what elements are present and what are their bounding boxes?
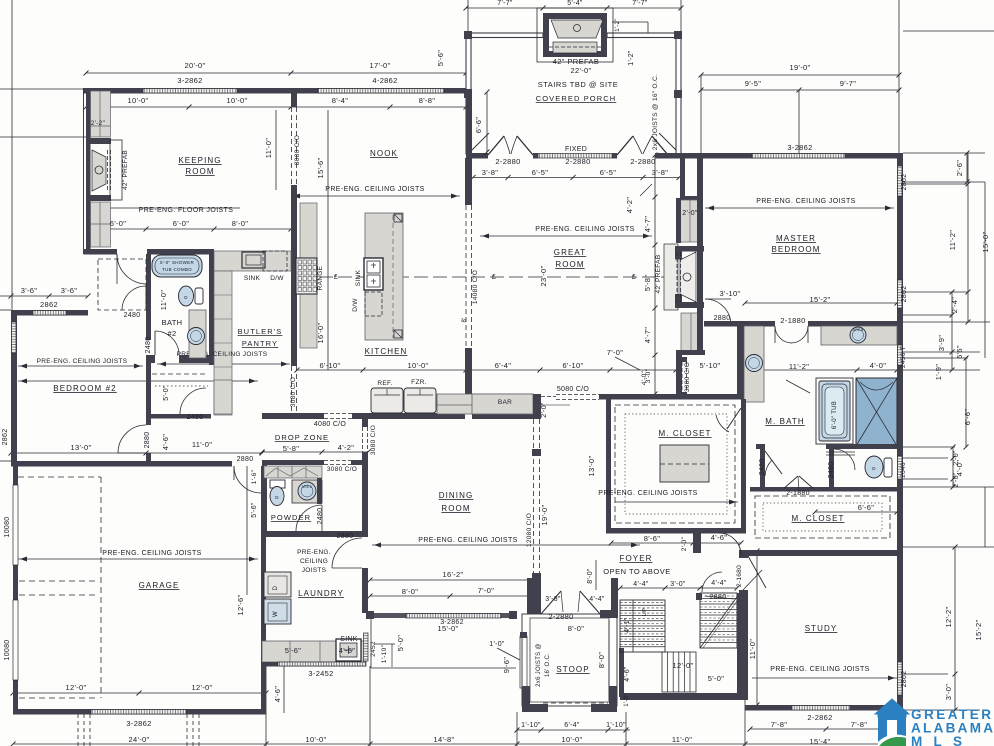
svg-text:2480: 2480 bbox=[317, 508, 324, 525]
svg-text:12'-0": 12'-0" bbox=[66, 683, 87, 692]
svg-text:PRE-ENG. CEILING JOISTS: PRE-ENG. CEILING JOISTS bbox=[325, 186, 424, 193]
svg-text:JOISTS: JOISTS bbox=[302, 567, 327, 574]
svg-text:D: D bbox=[273, 585, 279, 590]
svg-text:₤: ₤ bbox=[492, 274, 496, 281]
svg-text:OPEN TO ABOVE: OPEN TO ABOVE bbox=[603, 567, 671, 576]
svg-text:5'-10": 5'-10" bbox=[700, 361, 721, 370]
svg-text:2452: 2452 bbox=[370, 641, 377, 657]
svg-text:2'-0": 2'-0" bbox=[681, 536, 688, 551]
svg-text:PRE-ENG. CEILING JOISTS: PRE-ENG. CEILING JOISTS bbox=[756, 198, 855, 205]
svg-text:4'-7": 4'-7" bbox=[643, 327, 652, 343]
svg-text:2862: 2862 bbox=[40, 300, 58, 309]
svg-text:3-2862: 3-2862 bbox=[126, 719, 151, 728]
svg-text:NOOK: NOOK bbox=[370, 149, 398, 158]
svg-text:3080 C/O: 3080 C/O bbox=[327, 466, 357, 473]
svg-text:16' O.C.: 16' O.C. bbox=[545, 653, 551, 677]
svg-text:FOYER: FOYER bbox=[619, 554, 652, 563]
svg-text:5'-6": 5'-6" bbox=[285, 646, 301, 655]
svg-text:24'-0": 24'-0" bbox=[129, 735, 150, 744]
svg-text:PRE-ENG. CEILING JOISTS: PRE-ENG. CEILING JOISTS bbox=[770, 666, 869, 673]
svg-text:4-2862: 4-2862 bbox=[372, 76, 397, 85]
svg-text:2480: 2480 bbox=[759, 459, 766, 476]
svg-text:BEDROOM #2: BEDROOM #2 bbox=[53, 384, 116, 393]
svg-text:4080 C/O: 4080 C/O bbox=[314, 421, 347, 428]
svg-text:8'-6": 8'-6" bbox=[644, 534, 660, 543]
svg-text:1'-2": 1'-2" bbox=[628, 50, 635, 66]
svg-text:7'-0": 7'-0" bbox=[478, 586, 494, 595]
svg-text:D: D bbox=[184, 295, 188, 300]
svg-text:13'-0": 13'-0" bbox=[587, 456, 596, 477]
svg-text:2880: 2880 bbox=[237, 456, 254, 463]
svg-text:1'-10": 1'-10" bbox=[381, 644, 388, 663]
svg-text:PRE-ENG. CEILING JOISTS: PRE-ENG. CEILING JOISTS bbox=[535, 226, 634, 233]
svg-text:4'-4": 4'-4" bbox=[633, 581, 649, 588]
svg-text:AREA: AREA bbox=[302, 485, 313, 489]
svg-text:KEEPING: KEEPING bbox=[178, 156, 221, 165]
svg-text:5'6": 5'6" bbox=[955, 345, 964, 359]
svg-text:9'-5": 9'-5" bbox=[745, 79, 761, 88]
svg-text:3'-0": 3'-0" bbox=[944, 684, 953, 700]
svg-text:14'-8": 14'-8" bbox=[434, 735, 455, 744]
svg-text:8'-0": 8'-0" bbox=[597, 652, 606, 668]
svg-text:STUDY: STUDY bbox=[805, 624, 838, 633]
svg-text:2862: 2862 bbox=[901, 174, 908, 191]
svg-text:2'-0": 2'-0" bbox=[541, 402, 548, 418]
svg-text:BATH: BATH bbox=[162, 318, 183, 327]
svg-text:6'-4": 6'-4" bbox=[564, 722, 580, 729]
svg-text:5'-8": 5'-8" bbox=[643, 275, 652, 291]
svg-text:6'-0" TUB: 6'-0" TUB bbox=[832, 401, 838, 429]
svg-text:12'-2": 12'-2" bbox=[944, 607, 953, 628]
svg-text:PRE-ENG. CEILING JOISTS: PRE-ENG. CEILING JOISTS bbox=[102, 550, 201, 557]
svg-text:UP: UP bbox=[642, 608, 648, 616]
svg-text:2-1880: 2-1880 bbox=[780, 316, 805, 325]
svg-text:6'-6": 6'-6" bbox=[474, 117, 483, 133]
svg-text:4'-7": 4'-7" bbox=[643, 216, 652, 232]
svg-text:19'-0": 19'-0" bbox=[540, 505, 549, 526]
svg-text:11'-0": 11'-0" bbox=[192, 440, 212, 449]
svg-text:6'-10": 6'-10" bbox=[563, 361, 584, 370]
svg-text:DROP ZONE: DROP ZONE bbox=[275, 433, 329, 442]
svg-text:7'-0": 7'-0" bbox=[607, 348, 623, 357]
svg-text:8'-0": 8'-0" bbox=[587, 568, 594, 584]
svg-text:2480: 2480 bbox=[187, 414, 204, 421]
svg-text:10'-0": 10'-0" bbox=[306, 735, 327, 744]
svg-text:SINK: SINK bbox=[355, 269, 362, 286]
svg-text:6'-4": 6'-4" bbox=[495, 361, 511, 370]
svg-text:PRE-ENG. CEILING JOISTS: PRE-ENG. CEILING JOISTS bbox=[598, 490, 697, 497]
svg-text:5'-0" SHOWER: 5'-0" SHOWER bbox=[160, 260, 195, 265]
svg-text:8': 8' bbox=[462, 317, 468, 322]
svg-text:2862: 2862 bbox=[901, 671, 908, 688]
svg-text:1'-2": 1'-2" bbox=[615, 18, 621, 31]
svg-text:13'-0": 13'-0" bbox=[71, 443, 92, 452]
svg-text:12'-6": 12'-6" bbox=[236, 595, 245, 616]
svg-text:₤: ₤ bbox=[334, 274, 338, 281]
svg-text:3'-0": 3'-0" bbox=[670, 581, 686, 588]
svg-text:23'-0": 23'-0" bbox=[539, 266, 548, 287]
svg-text:10'-0": 10'-0" bbox=[227, 96, 248, 105]
svg-text:W: W bbox=[273, 611, 279, 617]
svg-text:11'-0": 11'-0" bbox=[672, 735, 692, 744]
svg-text:12'-0": 12'-0" bbox=[192, 683, 213, 692]
svg-text:5'-0": 5'-0" bbox=[708, 674, 724, 683]
svg-text:3'-8": 3'-8" bbox=[652, 168, 668, 177]
svg-text:6'-6": 6'-6" bbox=[858, 503, 874, 512]
svg-text:ROOM: ROOM bbox=[555, 260, 584, 269]
svg-text:4'-0": 4'-0" bbox=[641, 370, 648, 385]
svg-text:4'-6": 4'-6" bbox=[711, 533, 727, 542]
svg-text:3080 C/O: 3080 C/O bbox=[290, 377, 297, 407]
svg-text:STOOP: STOOP bbox=[556, 665, 589, 674]
svg-text:DINING: DINING bbox=[439, 491, 474, 500]
svg-text:5'-4": 5'-4" bbox=[567, 0, 583, 7]
svg-text:42" PREFAB: 42" PREFAB bbox=[122, 150, 129, 190]
svg-text:BAR: BAR bbox=[498, 399, 512, 406]
svg-text:4'-2": 4'-2" bbox=[338, 443, 354, 452]
svg-text:8'-8": 8'-8" bbox=[419, 96, 435, 105]
svg-text:1'-6": 1'-6" bbox=[251, 469, 258, 484]
svg-text:12'-0": 12'-0" bbox=[673, 661, 694, 670]
svg-text:#2: #2 bbox=[168, 329, 177, 338]
svg-text:2480: 2480 bbox=[828, 462, 835, 479]
svg-text:1'-10": 1'-10" bbox=[606, 722, 626, 729]
svg-text:4'-6": 4'-6" bbox=[161, 434, 170, 450]
svg-text:ROOM: ROOM bbox=[185, 167, 214, 176]
svg-text:SINK: SINK bbox=[244, 275, 261, 282]
svg-text:16'-0": 16'-0" bbox=[316, 323, 325, 344]
svg-text:15'-2": 15'-2" bbox=[974, 620, 983, 641]
svg-text:2880: 2880 bbox=[710, 594, 727, 601]
svg-text:14080 C/O: 14080 C/O bbox=[472, 270, 479, 304]
svg-text:15'-6": 15'-6" bbox=[316, 158, 325, 179]
svg-text:KITCHEN: KITCHEN bbox=[365, 347, 408, 356]
svg-text:ROOM: ROOM bbox=[441, 504, 470, 513]
svg-text:8'-0": 8'-0" bbox=[568, 624, 584, 633]
svg-text:1'-9": 1'-9" bbox=[934, 364, 943, 380]
svg-text:2x6 JOISTS @: 2x6 JOISTS @ bbox=[536, 643, 542, 687]
svg-text:17'-0": 17'-0" bbox=[370, 61, 391, 70]
svg-text:8'-0": 8'-0" bbox=[232, 219, 248, 228]
svg-text:TUB COMBO: TUB COMBO bbox=[162, 267, 192, 272]
svg-text:BUTLER'S: BUTLER'S bbox=[238, 327, 283, 336]
svg-text:3'-6": 3'-6" bbox=[61, 286, 77, 295]
svg-text:LAUNDRY: LAUNDRY bbox=[298, 589, 344, 598]
svg-text:3-2452: 3-2452 bbox=[308, 669, 333, 678]
svg-text:2862: 2862 bbox=[901, 286, 908, 303]
svg-text:3-2862: 3-2862 bbox=[177, 76, 202, 85]
svg-text:1'-2": 1'-2" bbox=[624, 693, 630, 706]
svg-text:12080 C/O: 12080 C/O bbox=[526, 513, 533, 547]
svg-text:STAIRS TBD @ SITE: STAIRS TBD @ SITE bbox=[538, 80, 618, 89]
svg-text:6'-0": 6'-0" bbox=[110, 219, 126, 228]
svg-text:5'-8": 5'-8" bbox=[283, 444, 299, 453]
svg-text:2046: 2046 bbox=[900, 462, 907, 478]
svg-text:5'-6": 5'-6" bbox=[436, 50, 445, 66]
svg-text:11'-0": 11'-0" bbox=[748, 639, 757, 659]
svg-text:11'-0": 11'-0" bbox=[264, 138, 273, 158]
svg-text:3080 C/O: 3080 C/O bbox=[684, 362, 691, 392]
svg-text:3'-10": 3'-10" bbox=[720, 289, 741, 298]
svg-text:2'-4": 2'-4" bbox=[950, 297, 959, 313]
svg-text:2x6 JOISTS @ 16" O.C.: 2x6 JOISTS @ 16" O.C. bbox=[652, 74, 659, 150]
svg-text:8080 C/O: 8080 C/O bbox=[294, 135, 301, 165]
svg-text:COVERED PORCH: COVERED PORCH bbox=[536, 94, 617, 103]
svg-text:5'-0": 5'-0" bbox=[163, 385, 170, 401]
svg-text:4'-6": 4'-6" bbox=[624, 666, 631, 682]
svg-text:2-2880: 2-2880 bbox=[548, 612, 573, 621]
svg-text:5080 C/O: 5080 C/O bbox=[557, 386, 590, 393]
svg-text:MASTER: MASTER bbox=[776, 234, 816, 243]
svg-text:6'-0": 6'-0" bbox=[173, 219, 189, 228]
svg-text:2-2862: 2-2862 bbox=[807, 713, 832, 722]
svg-text:2-2880: 2-2880 bbox=[565, 157, 590, 166]
svg-text:GARAGE: GARAGE bbox=[139, 581, 180, 590]
svg-text:2456 T: 2456 T bbox=[900, 346, 907, 368]
svg-text:RANGE: RANGE bbox=[317, 265, 324, 290]
svg-text:GREAT: GREAT bbox=[554, 248, 586, 257]
svg-text:22'-0": 22'-0" bbox=[571, 66, 592, 75]
svg-text:4'-2": 4'-2" bbox=[625, 197, 634, 213]
svg-text:D: D bbox=[872, 466, 876, 471]
svg-text:15'-0": 15'-0" bbox=[981, 232, 990, 253]
svg-text:5'-0": 5'-0" bbox=[396, 635, 405, 651]
svg-text:PRE-ENG. CEILING JOISTS: PRE-ENG. CEILING JOISTS bbox=[37, 358, 128, 365]
svg-text:2880: 2880 bbox=[337, 533, 354, 540]
svg-text:11'-2": 11'-2" bbox=[789, 362, 809, 371]
svg-text:MLS: MLS bbox=[911, 734, 963, 746]
svg-text:FIXED: FIXED bbox=[565, 146, 587, 153]
svg-text:FZR.: FZR. bbox=[411, 379, 427, 386]
svg-text:M. CLOSET: M. CLOSET bbox=[791, 514, 844, 523]
svg-text:4'-1": 4'-1" bbox=[624, 617, 631, 633]
svg-text:3080 C/O: 3080 C/O bbox=[370, 425, 377, 455]
svg-text:2-1680: 2-1680 bbox=[736, 565, 743, 587]
svg-text:4'-4": 4'-4" bbox=[711, 580, 727, 587]
svg-text:42" PREFAB: 42" PREFAB bbox=[553, 57, 600, 66]
svg-text:3'-6": 3'-6" bbox=[21, 286, 37, 295]
svg-text:PANTRY: PANTRY bbox=[242, 339, 278, 348]
svg-text:10080: 10080 bbox=[4, 640, 11, 661]
svg-text:2480: 2480 bbox=[145, 337, 152, 354]
svg-text:15'-2": 15'-2" bbox=[810, 295, 831, 304]
svg-text:3-2862: 3-2862 bbox=[787, 143, 812, 152]
svg-text:2880: 2880 bbox=[144, 432, 151, 449]
svg-text:6'-6": 6'-6" bbox=[963, 409, 972, 425]
svg-text:20'-0": 20'-0" bbox=[185, 61, 206, 70]
svg-text:16'-2": 16'-2" bbox=[443, 570, 464, 579]
svg-text:6'-5": 6'-5" bbox=[600, 168, 616, 177]
svg-text:9'-6": 9'-6" bbox=[502, 657, 511, 673]
svg-text:3'-8": 3'-8" bbox=[545, 596, 561, 603]
svg-text:7'-7": 7'-7" bbox=[632, 0, 648, 7]
svg-text:2880: 2880 bbox=[714, 315, 731, 322]
svg-text:1'-0": 1'-0" bbox=[489, 641, 505, 648]
svg-text:4'-4": 4'-4" bbox=[589, 596, 605, 603]
svg-text:M. CLOSET: M. CLOSET bbox=[658, 429, 711, 438]
svg-text:8'-4": 8'-4" bbox=[332, 96, 348, 105]
svg-text:9'-7": 9'-7" bbox=[840, 79, 856, 88]
svg-text:4'-6": 4'-6" bbox=[339, 646, 355, 655]
svg-text:10'-0": 10'-0" bbox=[408, 361, 429, 370]
svg-text:5'-6": 5'-6" bbox=[251, 502, 258, 518]
svg-text:POWDER: POWDER bbox=[271, 513, 311, 522]
svg-text:3'-8": 3'-8" bbox=[482, 168, 498, 177]
svg-text:6'-10": 6'-10" bbox=[320, 361, 341, 370]
svg-text:M. BATH: M. BATH bbox=[765, 417, 805, 426]
svg-text:6'-5": 6'-5" bbox=[532, 168, 548, 177]
svg-text:4'-6": 4'-6" bbox=[273, 686, 282, 702]
svg-text:2-2880: 2-2880 bbox=[495, 157, 520, 166]
svg-text:CEILING: CEILING bbox=[300, 558, 328, 565]
svg-text:2'-2": 2'-2" bbox=[91, 120, 106, 127]
svg-text:19'-0": 19'-0" bbox=[790, 63, 811, 72]
svg-text:2862: 2862 bbox=[2, 429, 9, 446]
svg-text:PRE-ENG.: PRE-ENG. bbox=[297, 549, 331, 556]
svg-text:15'-4": 15'-4" bbox=[810, 737, 831, 746]
svg-text:2480: 2480 bbox=[124, 312, 141, 319]
svg-text:₤: ₤ bbox=[632, 274, 636, 281]
svg-text:4'-0": 4'-0" bbox=[870, 361, 886, 370]
svg-text:2'-6": 2'-6" bbox=[955, 160, 964, 176]
svg-text:PRE-ENG. FLOOR JOISTS: PRE-ENG. FLOOR JOISTS bbox=[139, 207, 234, 214]
svg-text:PRE-ENG. CEILING JOISTS: PRE-ENG. CEILING JOISTS bbox=[418, 537, 517, 544]
svg-text:REF.: REF. bbox=[377, 380, 392, 387]
svg-text:7'-8": 7'-8" bbox=[851, 720, 867, 729]
svg-text:AREA: AREA bbox=[853, 328, 864, 332]
svg-text:2-1880: 2-1880 bbox=[786, 490, 810, 497]
svg-text:2'-0": 2'-0" bbox=[953, 472, 960, 488]
svg-text:10080: 10080 bbox=[4, 517, 11, 538]
svg-text:1'-10": 1'-10" bbox=[521, 722, 541, 729]
svg-text:3'-9": 3'-9" bbox=[937, 335, 946, 351]
svg-text:7'-8": 7'-8" bbox=[771, 720, 787, 729]
svg-text:2'-0": 2'-0" bbox=[682, 210, 698, 217]
svg-text:7'-7": 7'-7" bbox=[497, 0, 513, 7]
svg-text:11'-2": 11'-2" bbox=[948, 230, 957, 250]
svg-text:2-2880: 2-2880 bbox=[630, 157, 655, 166]
svg-text:8'-0": 8'-0" bbox=[402, 587, 418, 596]
svg-text:11'-0": 11'-0" bbox=[159, 290, 168, 310]
svg-text:15'-0": 15'-0" bbox=[438, 624, 459, 633]
svg-text:BEDROOM: BEDROOM bbox=[771, 245, 820, 254]
svg-text:42' PREFAB: 42' PREFAB bbox=[655, 255, 662, 294]
svg-text:10'-0": 10'-0" bbox=[562, 735, 583, 744]
svg-text:SINK: SINK bbox=[340, 636, 358, 643]
svg-text:D: D bbox=[275, 495, 279, 500]
svg-text:10'-0": 10'-0" bbox=[128, 96, 149, 105]
svg-text:D/W: D/W bbox=[270, 275, 284, 282]
svg-text:D/W: D/W bbox=[352, 298, 359, 312]
